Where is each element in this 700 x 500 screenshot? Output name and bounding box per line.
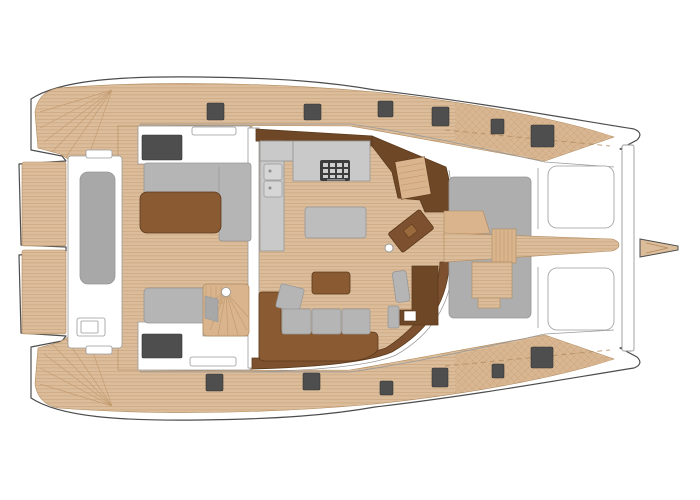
deck-hatch-port_deck (491, 119, 504, 134)
platform-tab-bottom (86, 346, 112, 354)
platform-locker (77, 318, 105, 336)
platform-sunpad (80, 172, 115, 284)
cockpit-table (140, 192, 221, 233)
catamaran-floorplan (0, 0, 700, 500)
swim-platform-port (22, 162, 66, 246)
cockpit-shelf-starboard (190, 357, 236, 366)
companionway-steps (395, 157, 431, 200)
deck-hatch-port_deck (531, 125, 554, 147)
trampoline-starboard (548, 268, 614, 330)
deck-hatch-cabin_tops (142, 334, 182, 358)
galley-counter-corner (260, 141, 293, 161)
mast-step (492, 229, 516, 263)
cockpit-sunbed (144, 288, 207, 323)
galley-island (305, 207, 366, 238)
nav-footrest (388, 306, 399, 328)
platform-tab-top (86, 150, 112, 158)
deck-hatch-starboard_deck (432, 368, 448, 387)
nav-station (388, 266, 438, 328)
coffee-table (312, 272, 350, 294)
galley-sink-1 (264, 164, 282, 180)
deck-hatch-starboard_deck (380, 381, 393, 395)
bow-crossbeam (622, 145, 634, 351)
bowsprit (640, 239, 678, 257)
deck-hatch-starboard_deck (303, 373, 320, 390)
floorplan-svg (0, 0, 700, 500)
trampoline-port (548, 166, 614, 228)
nav-drawer (404, 311, 416, 321)
deck-hatch-port_deck (304, 104, 321, 120)
galley-sink-2 (264, 181, 282, 197)
spiral-staircase (203, 284, 249, 336)
deck-hatch-port_deck (207, 103, 224, 120)
swim-platform-starboard (22, 250, 66, 334)
stove (320, 160, 350, 181)
table-leg-fitting (385, 244, 393, 252)
walkway-aft-block (472, 262, 512, 298)
walkway-aft-tab (478, 298, 500, 308)
deck-hatch-cabin_tops (142, 135, 182, 160)
deck-hatch-port_deck (378, 101, 393, 117)
deck-hatch-starboard_deck (206, 374, 223, 391)
deck-hatch-starboard_deck (492, 364, 504, 378)
aft-tender-platform (68, 150, 122, 354)
deck-hatch-port_deck (432, 107, 449, 126)
cockpit-shelf-port (192, 127, 236, 135)
deck-hatch-starboard_deck (531, 347, 553, 368)
